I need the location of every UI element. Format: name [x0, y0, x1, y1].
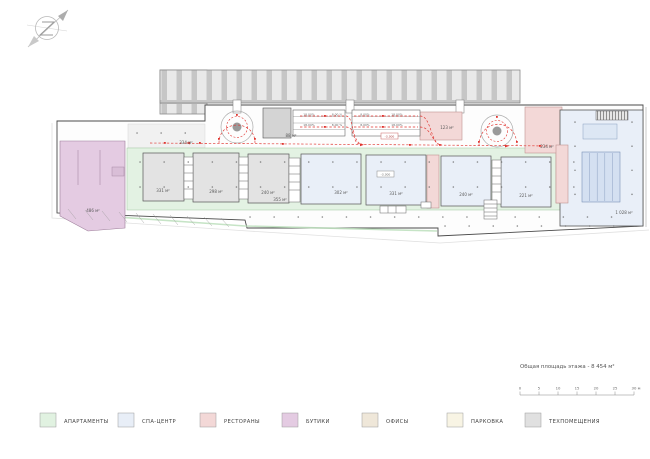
legend-item-offices: ОФИСЫ	[362, 413, 409, 427]
slope-label: 8,00 %	[332, 112, 343, 116]
legend-label: ТЕХПОМЕЩЕНИЯ	[548, 419, 600, 425]
slope-label: 18,00%	[391, 123, 403, 127]
slope-label: 18,00%	[303, 123, 315, 127]
stair-hatch	[596, 111, 628, 120]
elevation-text: -3.300	[381, 173, 391, 177]
legend-label: СПА-ЦЕНТР	[142, 419, 176, 425]
legend-swatch	[525, 413, 541, 427]
scale-tick-label: 5	[538, 386, 541, 391]
legend-label: ПАРКОВКА	[471, 419, 503, 425]
scale-tick-label: 25	[613, 386, 618, 391]
north-arrow-icon	[27, 10, 68, 47]
boutique-block	[60, 141, 125, 231]
legend-swatch	[362, 413, 378, 427]
legend-swatch	[282, 413, 298, 427]
scale-tick-label: 0	[519, 386, 522, 391]
area-label-apartment-3: 240 м²	[261, 190, 275, 195]
legend-item-boutiques: БУТИКИ	[282, 413, 330, 427]
scale-tick-label: 30 м	[632, 386, 641, 391]
legend-item-restaurants: РЕСТОРАНЫ	[200, 413, 260, 427]
area-label-spa-4: 221 м²	[519, 193, 533, 198]
area-label-corridor: 355 м²	[273, 197, 287, 202]
legend-item-tech-rooms: ТЕХПОМЕЩЕНИЯ	[525, 413, 600, 427]
area-label-spa-2: 331 м²	[389, 191, 403, 196]
spa-pool-hall	[556, 110, 643, 226]
area-label-spa-3: 240 м²	[459, 192, 473, 197]
slope-label: 8,00 %	[332, 123, 343, 127]
apartment-rooms	[143, 153, 289, 203]
legend-swatch	[200, 413, 216, 427]
area-label-apartment-1: 331 м²	[156, 188, 170, 193]
elevation-marker-1: -3.300	[381, 133, 398, 139]
scale-tick-label: 20	[594, 386, 599, 391]
area-label-boutique: 486 м²	[86, 208, 100, 213]
spa-rooms	[301, 154, 551, 207]
slope-label: 8,00%	[360, 112, 370, 116]
area-label-restaurant-right: 234 м²	[540, 144, 554, 149]
legend-swatch	[40, 413, 56, 427]
area-label-restaurant-top: 123 м²	[440, 125, 454, 130]
area-label-apartment-2: 298 м²	[209, 189, 223, 194]
total-area-label: Общая площадь этажа - 8 454 м²	[520, 363, 614, 370]
legend-item-spa-center: СПА-ЦЕНТР	[118, 413, 176, 427]
slope-label: 18,00%	[391, 112, 403, 116]
scale-bar: 0 5 10 15 20 25 30 м	[519, 386, 641, 396]
floor-plan-page: -3.300 -3.300 18,00% 8,00 % 18,00% 8,00 …	[0, 0, 650, 459]
legend-item-parking: ПАРКОВКА	[447, 413, 503, 427]
legend-swatch	[118, 413, 134, 427]
legend-label: РЕСТОРАНЫ	[224, 419, 260, 425]
elevation-marker-2: -3.300	[377, 171, 394, 177]
scale-tick-label: 15	[575, 386, 580, 391]
scale-tick-label: 10	[556, 386, 561, 391]
legend-label: АПАРТАМЕНТЫ	[64, 419, 109, 425]
legend-label: БУТИКИ	[306, 419, 330, 425]
elevation-text: -3.300	[385, 135, 395, 139]
swimming-pool	[582, 152, 620, 202]
area-label-tech-strip: 334 м²	[179, 140, 193, 145]
legend-label: ОФИСЫ	[386, 419, 409, 425]
area-label-spa-pool-hall: 1 028 м²	[615, 210, 633, 215]
legend: АПАРТАМЕНТЫ СПА-ЦЕНТР РЕСТОРАНЫ БУТИКИ О…	[40, 413, 600, 427]
area-label-spa-1: 302 м²	[334, 190, 348, 195]
floor-plan-drawing: -3.300 -3.300 18,00% 8,00 % 18,00% 8,00 …	[0, 0, 650, 459]
legend-item-apartments: АПАРТАМЕНТЫ	[40, 413, 109, 427]
slope-label: 18,00%	[303, 112, 315, 116]
slope-label: 8,00%	[360, 123, 370, 127]
tech-strip	[128, 124, 205, 148]
area-label-ramp-zone: 88 м²	[286, 133, 297, 138]
legend-swatch	[447, 413, 463, 427]
